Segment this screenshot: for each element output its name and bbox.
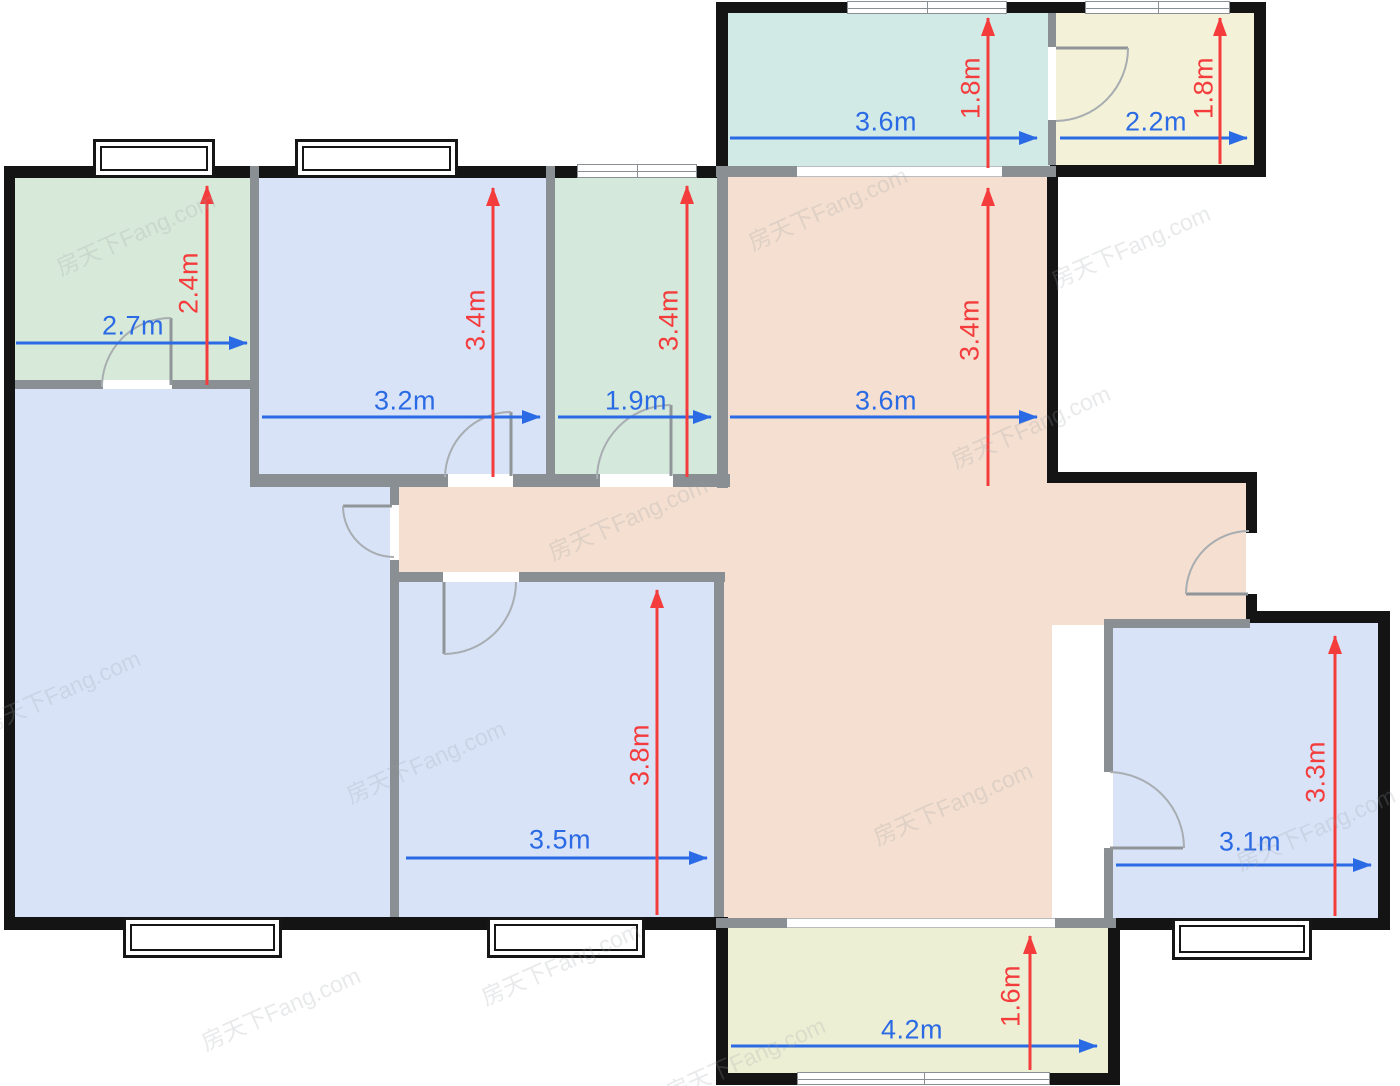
dim-label-width: 2.7m [102,311,164,342]
dim-label-height: 3.4m [461,289,492,351]
watermark-text: 房天下Fang.com [1045,195,1215,296]
dim-label-width: 3.2m [374,386,436,417]
wall [716,2,728,178]
wall [1246,472,1257,533]
dim-label-width: 3.5m [529,825,591,856]
dim-label-height: 1.8m [1189,57,1220,119]
dim-label-height: 3.3m [1301,741,1332,803]
wall [1254,2,1266,177]
window [123,917,282,958]
room-bedroom-top-left-fill [9,171,255,385]
wall [1108,918,1120,1085]
window [93,139,215,178]
wall [250,474,448,487]
watermark-text: 房天下Fang.com [195,957,365,1058]
room-living-dining-fill [722,173,1052,923]
door-opening [103,380,172,389]
window [577,164,697,178]
room-balcony-top-fill [722,8,1052,173]
wall [390,582,399,917]
wall [1104,848,1113,918]
wall [1104,619,1250,628]
wall [1055,918,1116,928]
balcony-railing [797,1072,1050,1085]
wall [390,474,399,505]
wall [4,166,15,930]
wall [1050,165,1266,177]
window [847,1,1007,14]
door-opening [1048,47,1056,120]
door-opening [1104,772,1113,848]
wall [390,572,443,582]
wall [1378,611,1390,930]
dim-label-width: 3.6m [855,386,917,417]
room-big-left-fill [252,482,395,921]
wall [172,380,252,389]
room-top-small-fill [551,171,723,488]
floor-plan: 2.7m 2.4m 3.2m 3.4m 1.9m 3.4m 3.6m 3.4m … [0,0,1400,1086]
dim-label-height: 3.4m [955,299,986,361]
sliding-opening [787,918,1055,928]
room-bathroom-top-right-fill [1052,8,1260,171]
wall [1047,175,1058,483]
wall [716,166,797,177]
door-opening [390,505,399,560]
wall [1104,619,1113,772]
window [1172,918,1312,960]
door-opening [1246,533,1257,594]
dim-label-height: 1.6m [996,965,1027,1027]
dim-label-height: 3.4m [654,289,685,351]
wall [15,380,103,389]
wall [716,918,787,928]
dim-label-width: 3.6m [855,107,917,138]
wall [546,166,555,482]
wall [1246,611,1390,623]
wall [1048,120,1056,165]
window [295,139,458,178]
dim-label-width: 4.2m [881,1015,943,1046]
dim-label-height: 1.8m [956,57,987,119]
dim-label-width: 1.9m [605,386,667,417]
dim-label-height: 3.8m [625,724,656,786]
wall [519,572,725,582]
door-opening [448,474,513,487]
dim-label-height: 2.4m [174,252,205,314]
wall [513,474,600,487]
wall [717,177,728,488]
wall [1048,13,1056,47]
wall [1002,166,1056,177]
window [1085,1,1230,14]
wall [714,582,724,917]
room-living-dining-fill [1052,483,1250,625]
wall [1047,472,1257,483]
room-bedroom-bottom-right-fill [1108,623,1383,923]
door-opening [443,572,519,582]
dim-label-width: 2.2m [1125,107,1187,138]
wall [250,166,259,482]
room-bedroom-top-middle-fill [255,171,551,482]
